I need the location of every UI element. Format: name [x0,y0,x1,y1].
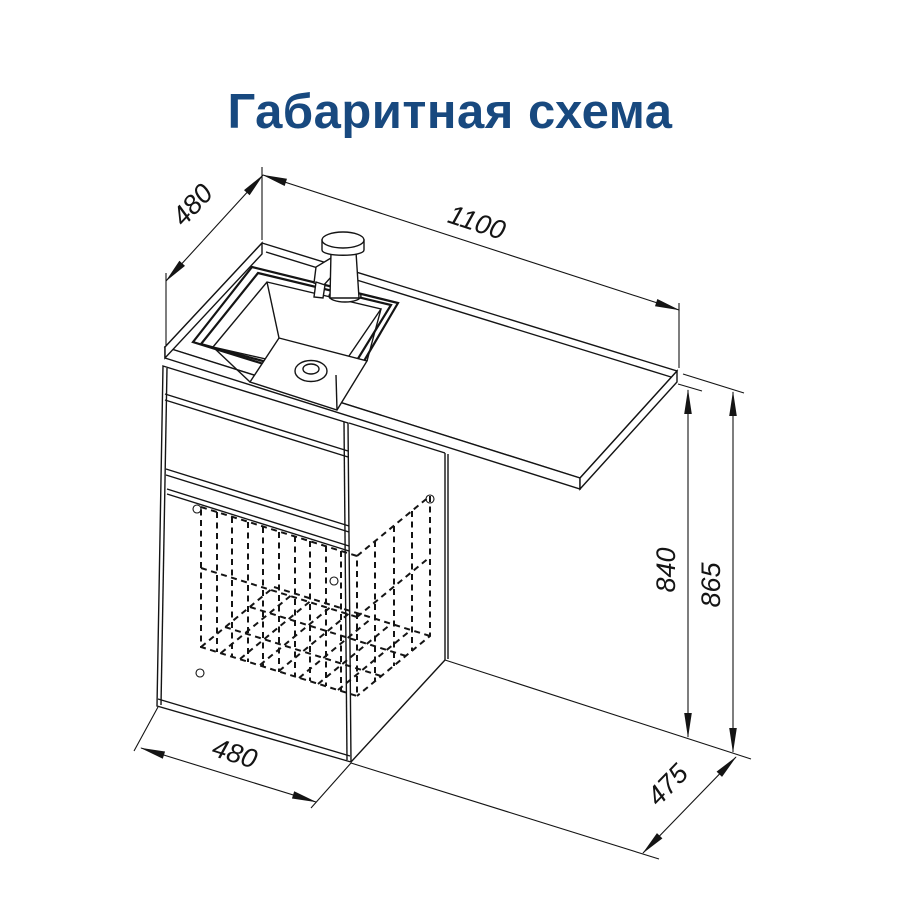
dimension-floor-depth: 475 [641,757,736,853]
dim-label-cabinet-width: 480 [209,732,261,774]
sink-drain [295,361,327,382]
dimension-total-height: 865 [683,374,744,752]
faucet [314,232,364,302]
page: Габаритная схема [0,0,900,900]
dimension-underside-height: 840 [651,384,702,737]
dim-label-total-height: 865 [696,561,726,607]
dim-label-countertop-width: 1100 [445,199,509,245]
dim-label-floor-depth: 475 [641,757,695,811]
dim-label-countertop-depth: 480 [166,178,219,231]
dimension-drawing: 480 1100 840 865 480 475 [0,0,900,900]
dim-label-underside-height: 840 [651,547,681,592]
